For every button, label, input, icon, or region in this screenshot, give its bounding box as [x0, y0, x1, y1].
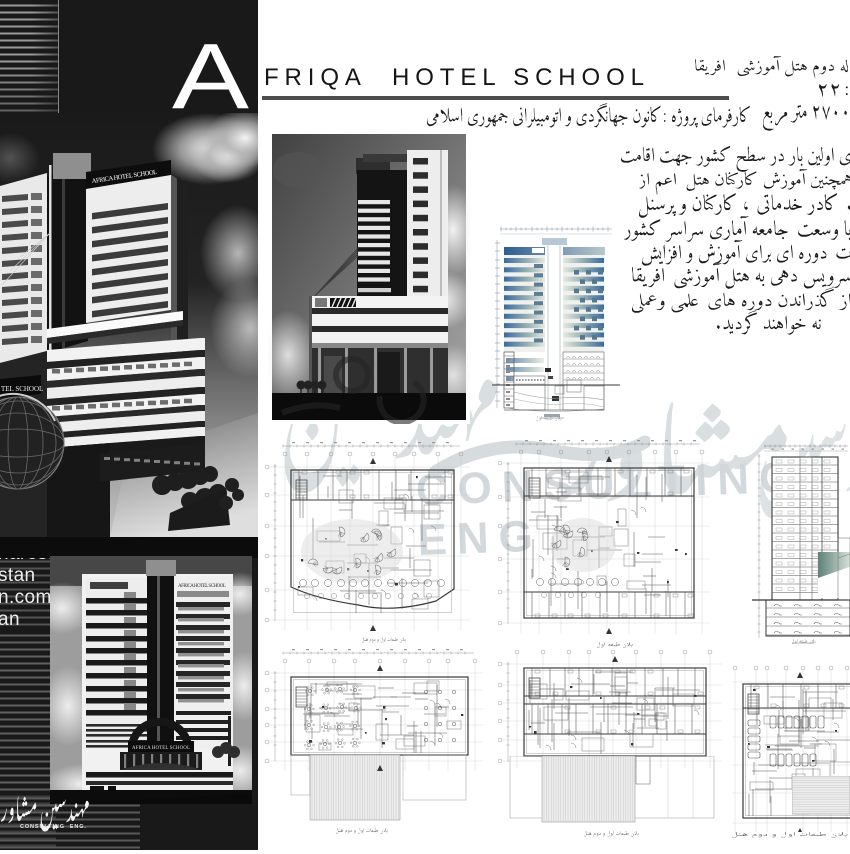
svg-text:AFRICA HOTEL SCHOOL: AFRICA HOTEL SCHOOL — [178, 584, 226, 589]
svg-text:AFRICA HOTEL SCHOOL: AFRICA HOTEL SCHOOL — [132, 746, 190, 751]
svg-text:TEL SCHOOL: TEL SCHOOL — [1, 385, 43, 393]
